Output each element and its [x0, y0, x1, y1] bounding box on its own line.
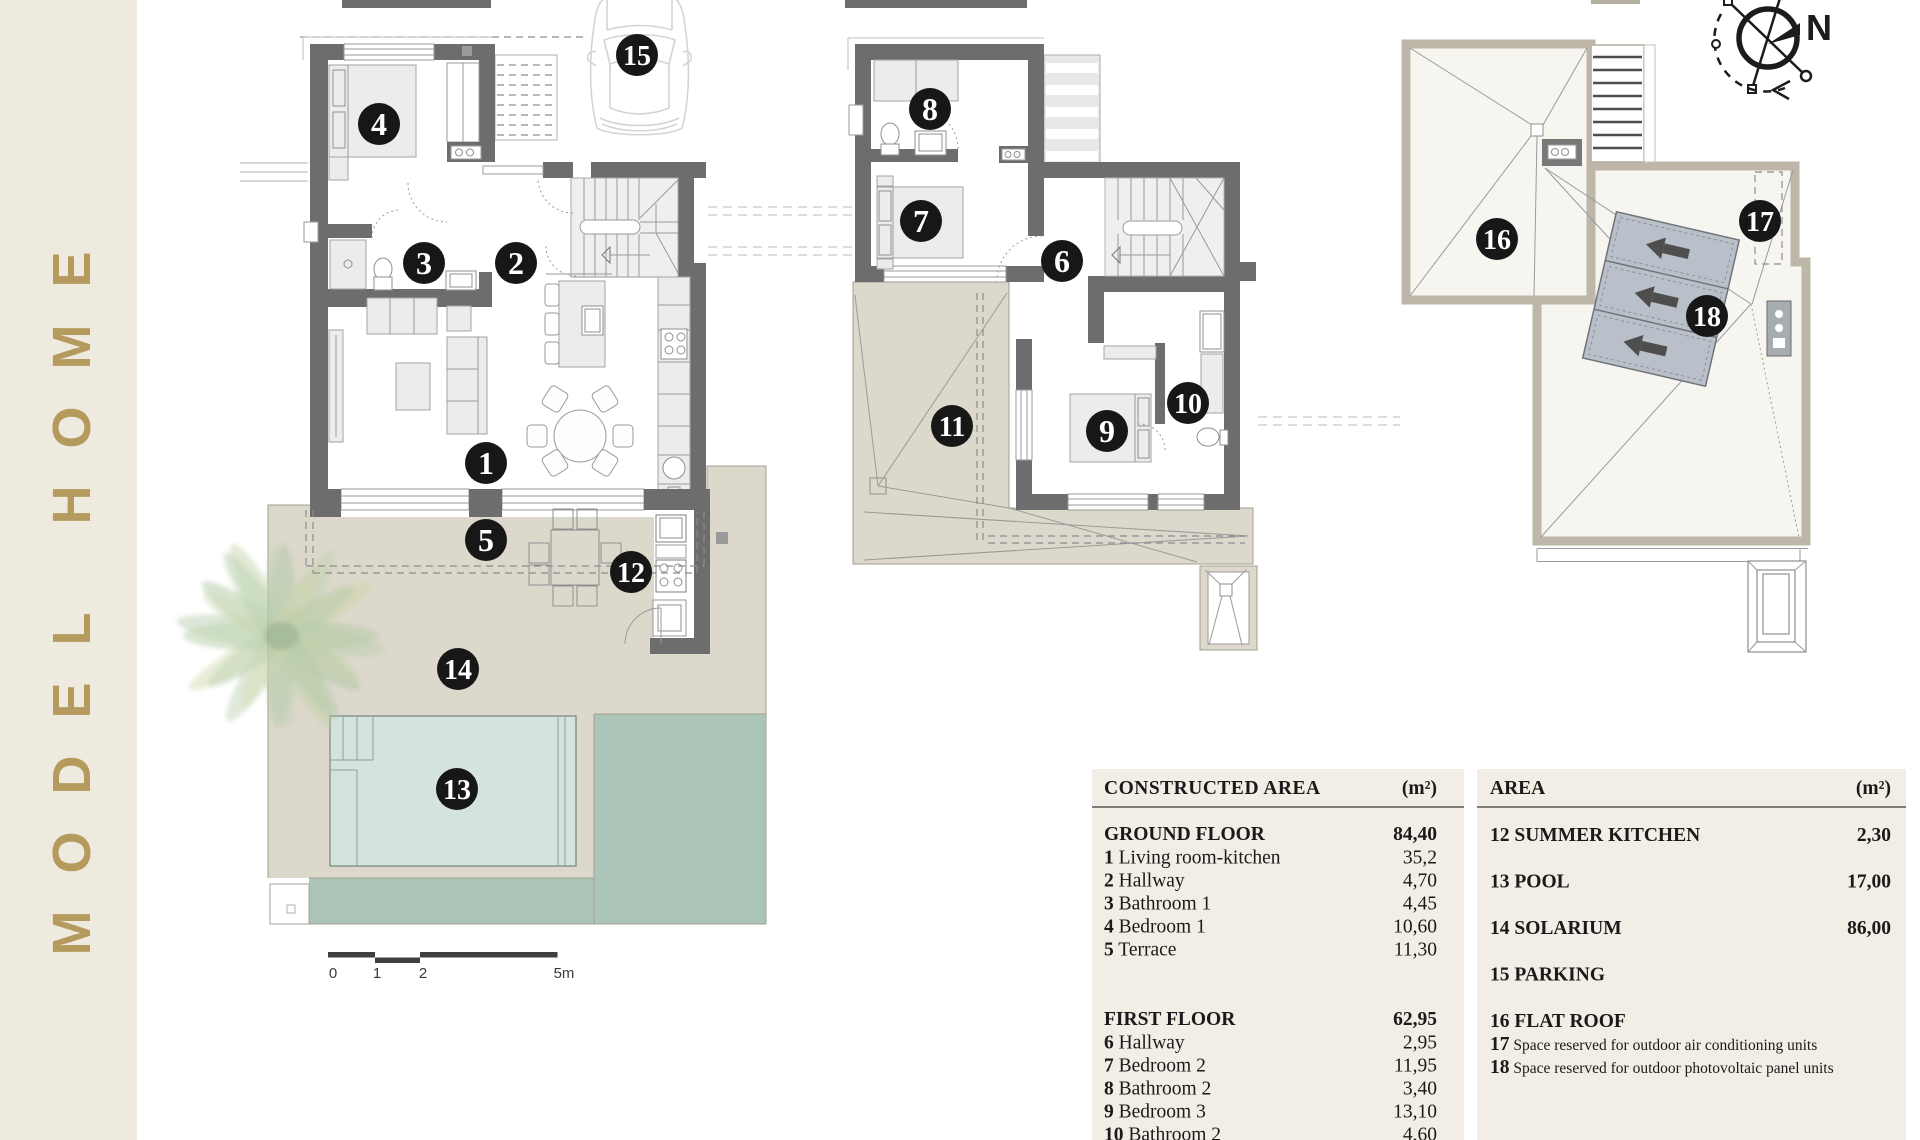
svg-text:16: 16 [1483, 225, 1511, 256]
svg-text:8 Bathroom 2: 8 Bathroom 2 [1104, 1079, 1211, 1100]
svg-text:10 Bathroom 2: 10 Bathroom 2 [1104, 1125, 1221, 1140]
svg-text:2: 2 [508, 245, 524, 281]
svg-text:17 Space reserved for outdoor: 17 Space reserved for outdoor air condit… [1490, 1034, 1817, 1055]
svg-text:11: 11 [939, 412, 965, 443]
svg-text:1: 1 [373, 965, 381, 982]
svg-text:14 SOLARIUM: 14 SOLARIUM [1490, 918, 1622, 939]
svg-text:4 Bedroom 1: 4 Bedroom 1 [1104, 917, 1206, 938]
svg-text:1 Living room-kitchen: 1 Living room-kitchen [1104, 848, 1281, 869]
svg-text:62,95: 62,95 [1393, 1009, 1437, 1030]
svg-text:14: 14 [444, 655, 472, 686]
svg-text:16 FLAT ROOF: 16 FLAT ROOF [1490, 1011, 1626, 1032]
svg-text:AREA: AREA [1490, 778, 1545, 799]
svg-text:5m: 5m [554, 965, 575, 982]
svg-text:15 PARKING: 15 PARKING [1490, 965, 1605, 986]
svg-text:6: 6 [1054, 243, 1070, 279]
svg-text:(m²): (m²) [1856, 778, 1891, 799]
svg-text:9: 9 [1099, 413, 1115, 449]
svg-text:MODEL HOME: MODEL HOME [42, 214, 102, 955]
svg-text:3,40: 3,40 [1403, 1079, 1437, 1100]
svg-text:17,00: 17,00 [1847, 872, 1891, 893]
svg-text:35,2: 35,2 [1403, 848, 1437, 869]
svg-text:17: 17 [1746, 207, 1774, 238]
svg-text:8: 8 [922, 91, 938, 127]
svg-text:CONSTRUCTED AREA: CONSTRUCTED AREA [1104, 778, 1321, 799]
svg-text:4: 4 [371, 106, 387, 142]
svg-text:18: 18 [1693, 302, 1721, 333]
svg-text:5 Terrace: 5 Terrace [1104, 940, 1176, 961]
svg-text:2 Hallway: 2 Hallway [1104, 871, 1185, 892]
svg-text:2,95: 2,95 [1403, 1033, 1437, 1054]
svg-text:GROUND FLOOR: GROUND FLOOR [1104, 824, 1266, 845]
svg-text:5: 5 [478, 522, 494, 558]
svg-text:4,45: 4,45 [1403, 894, 1437, 915]
svg-text:11,30: 11,30 [1394, 940, 1437, 961]
svg-text:7: 7 [913, 203, 929, 239]
svg-text:13: 13 [443, 775, 471, 806]
svg-text:13 POOL: 13 POOL [1490, 872, 1570, 893]
svg-text:13,10: 13,10 [1393, 1102, 1437, 1123]
svg-text:10,60: 10,60 [1393, 917, 1437, 938]
svg-text:4,60: 4,60 [1403, 1125, 1437, 1140]
svg-text:0: 0 [329, 965, 337, 982]
svg-text:7 Bedroom 2: 7 Bedroom 2 [1104, 1056, 1206, 1077]
svg-text:3 Bathroom 1: 3 Bathroom 1 [1104, 894, 1211, 915]
svg-text:9 Bedroom 3: 9 Bedroom 3 [1104, 1102, 1206, 1123]
svg-text:N: N [1806, 7, 1832, 48]
svg-text:84,40: 84,40 [1393, 824, 1437, 845]
svg-text:FIRST FLOOR: FIRST FLOOR [1104, 1009, 1236, 1030]
svg-text:15: 15 [623, 41, 651, 72]
svg-text:11,95: 11,95 [1394, 1056, 1437, 1077]
svg-text:1: 1 [478, 445, 494, 481]
svg-text:18 Space reserved for outdoor: 18 Space reserved for outdoor photovolta… [1490, 1057, 1834, 1078]
svg-text:12: 12 [617, 558, 645, 589]
svg-text:3: 3 [416, 245, 432, 281]
svg-text:(m²): (m²) [1402, 778, 1437, 799]
svg-text:2,30: 2,30 [1857, 825, 1891, 846]
svg-text:12 SUMMER KITCHEN: 12 SUMMER KITCHEN [1490, 825, 1700, 846]
svg-text:86,00: 86,00 [1847, 918, 1891, 939]
svg-text:4,70: 4,70 [1403, 871, 1437, 892]
svg-text:2: 2 [419, 965, 427, 982]
svg-text:6 Hallway: 6 Hallway [1104, 1033, 1185, 1054]
svg-text:10: 10 [1174, 389, 1202, 420]
